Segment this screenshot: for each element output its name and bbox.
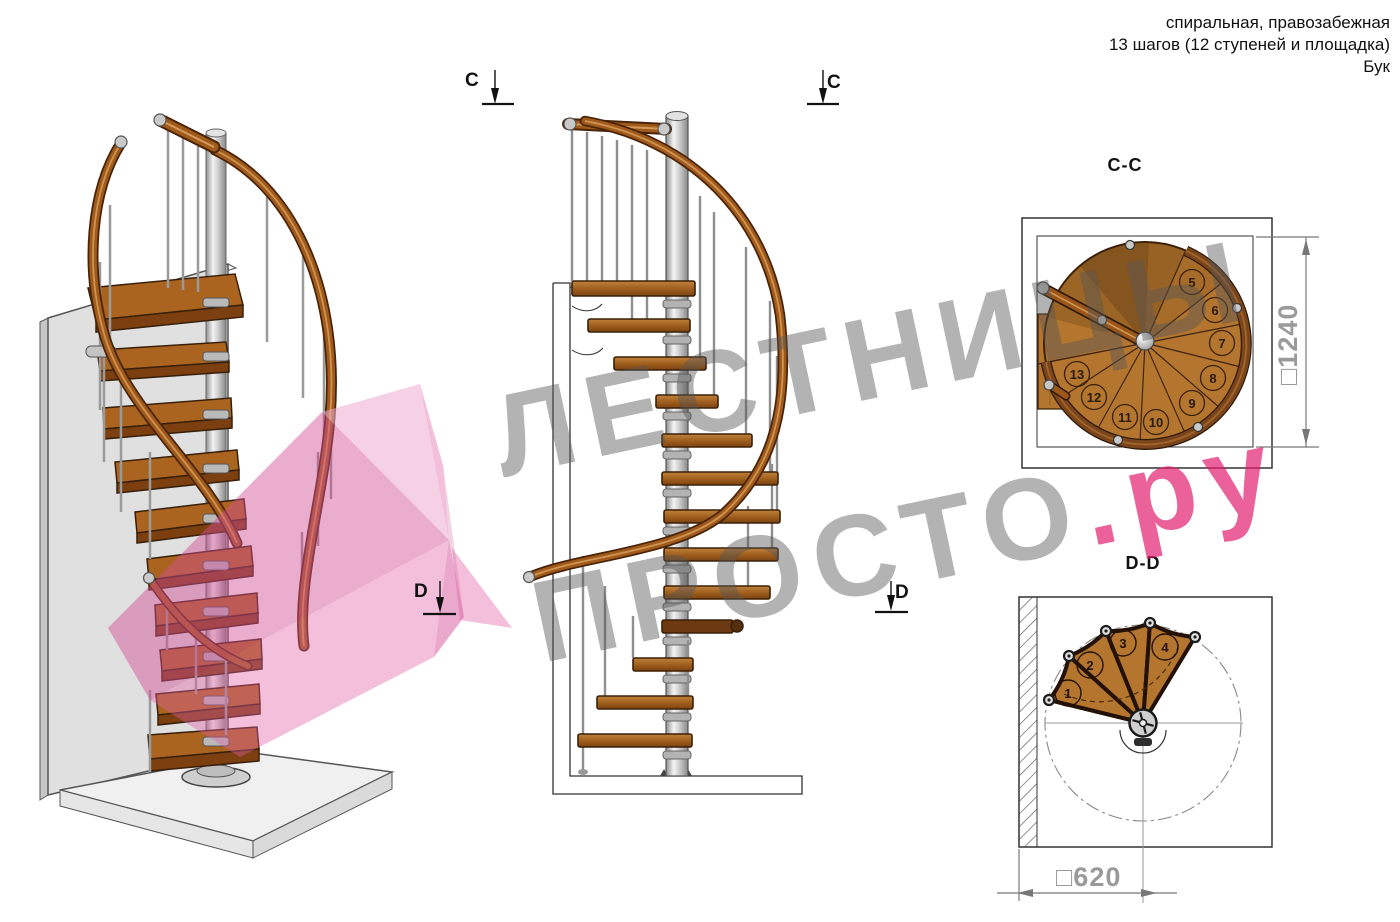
svg-text:7: 7 xyxy=(1218,336,1225,351)
svg-text:8: 8 xyxy=(1209,371,1216,386)
view-label-cc: C-C xyxy=(1085,155,1165,176)
middle-elevation-view xyxy=(524,112,803,795)
wall-hatch xyxy=(1019,597,1037,847)
svg-text:2: 2 xyxy=(1086,658,1093,673)
pole-top-ball xyxy=(1136,332,1154,350)
drawing-sheet: 5 6 7 8 9 10 11 12 13 □1240 xyxy=(0,0,1400,922)
plan-view-dd: 1 2 3 4 □620 xyxy=(997,597,1272,903)
dimension-620-text: □620 xyxy=(1056,862,1121,892)
material-line: Бук xyxy=(1109,56,1390,78)
svg-text:11: 11 xyxy=(1118,410,1132,425)
svg-text:9: 9 xyxy=(1188,396,1195,411)
svg-text:4: 4 xyxy=(1161,640,1169,655)
svg-text:1: 1 xyxy=(1064,686,1071,701)
step-count-line: 13 шагов (12 ступеней и площадка) xyxy=(1109,34,1390,56)
dimension-620: □620 xyxy=(997,849,1177,901)
plan-view-cc: 5 6 7 8 9 10 11 12 13 □1240 xyxy=(1022,218,1319,468)
section-letter-c-right: C xyxy=(827,72,841,94)
dimension-1240-text: □1240 xyxy=(1273,304,1303,385)
dimension-1240: □1240 xyxy=(1256,237,1319,447)
svg-text:6: 6 xyxy=(1211,303,1218,318)
section-letter-d-left: D xyxy=(414,581,428,603)
svg-text:12: 12 xyxy=(1087,390,1101,405)
svg-text:5: 5 xyxy=(1188,275,1195,290)
section-letter-c-left: C xyxy=(465,70,479,92)
section-letter-d-right: D xyxy=(895,582,909,604)
svg-text:13: 13 xyxy=(1070,367,1084,382)
section-marker-c-left xyxy=(482,70,514,104)
stair-type-line: спиральная, правозабежная xyxy=(1109,12,1390,34)
view-label-dd: D-D xyxy=(1103,553,1183,574)
technical-drawing: 5 6 7 8 9 10 11 12 13 □1240 xyxy=(0,0,1400,922)
svg-text:10: 10 xyxy=(1149,415,1163,430)
svg-text:3: 3 xyxy=(1119,636,1126,651)
title-block: спиральная, правозабежная 13 шагов (12 с… xyxy=(1109,12,1390,78)
